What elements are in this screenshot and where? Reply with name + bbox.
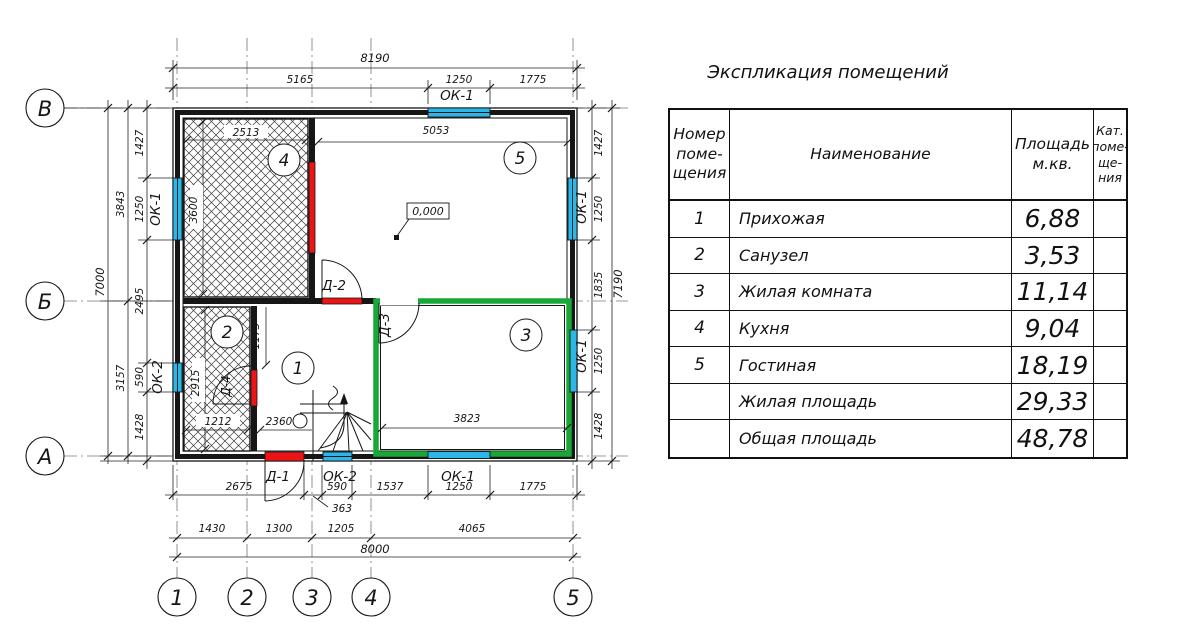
dim-top-3: 1775	[520, 74, 547, 86]
room-marker-room3: 3	[521, 326, 532, 346]
axis-letter-a: А	[36, 445, 52, 469]
dim-left-mid-2: 3157	[115, 364, 127, 391]
dim-room4-h: 3600	[188, 196, 200, 223]
label-ok2-bottom: ОК-2	[323, 469, 357, 485]
col-header-category: Кат. поме- ще- ния	[1094, 110, 1126, 201]
col-header-area: Площадь м.кв.	[1012, 110, 1094, 201]
axis-number-5: 5	[566, 586, 579, 610]
room-area: 48,78	[1012, 420, 1094, 457]
label-d1: Д-1	[265, 469, 290, 485]
dim-bottom-total: 8000	[360, 542, 389, 556]
label-ok1-right-upper: ОК-1	[574, 190, 590, 224]
room-category	[1094, 384, 1126, 421]
axis-number-2: 2	[240, 586, 253, 610]
floor-plan-sheet: 0,000	[0, 0, 1200, 640]
axis-number-4: 4	[364, 586, 377, 610]
dim-room3-w: 3823	[454, 413, 481, 425]
dim-left-total: 7000	[93, 267, 107, 296]
room-name: Гостиная	[730, 347, 1012, 384]
room-category	[1094, 347, 1126, 384]
label-ok1-right-lower: ОК-1	[574, 339, 590, 373]
dim-right-5: 1428	[593, 412, 605, 439]
label-d2: Д-2	[321, 278, 346, 294]
room-category	[1094, 238, 1126, 275]
dim-bottom-4: 1537	[377, 481, 404, 493]
label-d3: Д-3	[377, 313, 393, 338]
room-area: 29,33	[1012, 384, 1094, 421]
door-d3-opening	[380, 298, 418, 306]
dim-right-4: 1250	[593, 347, 605, 374]
col-header-number: Номер поме- щения	[670, 110, 730, 201]
dim-top-2: 1250	[446, 74, 473, 86]
label-ok1-left: ОК-1	[148, 192, 164, 226]
room-area: 11,14	[1012, 274, 1094, 311]
room-category	[1094, 311, 1126, 348]
kitchen-living-opening	[309, 162, 315, 253]
dim-right-total: 7190	[611, 269, 625, 298]
elevation-label: 0,000	[412, 205, 444, 218]
dim-right-3: 1835	[593, 271, 605, 298]
room-name: Общая площадь	[730, 420, 1012, 457]
explication-table: Номер поме- щения Наименование Площадь м…	[668, 108, 1128, 459]
dim-room2-w: 1212	[205, 416, 232, 428]
row-number: 5	[670, 347, 730, 384]
room-name: Санузел	[730, 238, 1012, 275]
dim-right-1: 1427	[593, 129, 605, 156]
row-number: 1	[670, 201, 730, 238]
row-number	[670, 420, 730, 457]
label-ok1-top: ОК-1	[440, 88, 474, 104]
window-ok1-bottom	[428, 452, 490, 459]
room-category	[1094, 201, 1126, 238]
dim-room5-w: 5053	[423, 125, 450, 137]
dim-top-1: 5165	[287, 74, 314, 86]
dim-left-4: 590	[134, 367, 146, 387]
dim-hall-w: 2360	[266, 416, 293, 428]
axis-number-1: 1	[170, 586, 183, 610]
dim-bottom-6: 1775	[520, 481, 547, 493]
row-number: 2	[670, 238, 730, 275]
door-d1	[265, 452, 304, 461]
room-area: 9,04	[1012, 311, 1094, 348]
label-d4: Д-4	[219, 375, 233, 397]
room-marker-kitchen: 4	[279, 151, 290, 171]
dim-grid-3: 1205	[328, 523, 355, 535]
room-marker-living: 5	[515, 149, 526, 169]
dim-top-total: 8190	[360, 51, 389, 65]
dim-right-2: 1250	[593, 195, 605, 222]
door-d4	[251, 370, 257, 406]
door-d2	[322, 298, 362, 304]
room-area: 6,88	[1012, 201, 1094, 238]
row-number	[670, 384, 730, 421]
axis-letter-b: Б	[38, 290, 52, 314]
room-area: 18,19	[1012, 347, 1094, 384]
room-category	[1094, 274, 1126, 311]
dim-grid-2: 1300	[266, 523, 293, 535]
axis-number-3: 3	[305, 586, 318, 610]
table-title: Экспликация помещений	[668, 62, 988, 83]
dim-room2-h: 2915	[190, 369, 202, 396]
dim-room4-w: 2513	[233, 127, 260, 139]
room-marker-hallway: 1	[293, 359, 304, 379]
label-ok1-bottom: ОК-1	[441, 469, 475, 485]
room-marker-bathroom: 2	[222, 323, 233, 343]
room-area: 3,53	[1012, 238, 1094, 275]
room-name: Жилая комната	[730, 274, 1012, 311]
row-number: 4	[670, 311, 730, 348]
room-name: Жилая площадь	[730, 384, 1012, 421]
row-number: 3	[670, 274, 730, 311]
dim-bottom-1: 2675	[226, 481, 253, 493]
dim-left-3: 2495	[134, 287, 146, 314]
dim-grid-1: 1430	[199, 523, 226, 535]
axis-letter-v: В	[38, 97, 52, 121]
dim-left-5: 1428	[134, 413, 146, 440]
room-category	[1094, 420, 1126, 457]
dim-left-2: 1250	[134, 195, 146, 222]
dim-left-mid-1: 3843	[115, 191, 127, 218]
col-header-name: Наименование	[730, 110, 1012, 201]
dim-grid-4: 4065	[459, 523, 486, 535]
room-name: Прихожая	[730, 201, 1012, 238]
dim-hall-h: 1173	[250, 323, 262, 350]
dim-bottom-2: 363	[332, 503, 352, 515]
label-ok2-left: ОК-2	[150, 360, 166, 394]
room-name: Кухня	[730, 311, 1012, 348]
dim-left-1: 1427	[134, 129, 146, 156]
